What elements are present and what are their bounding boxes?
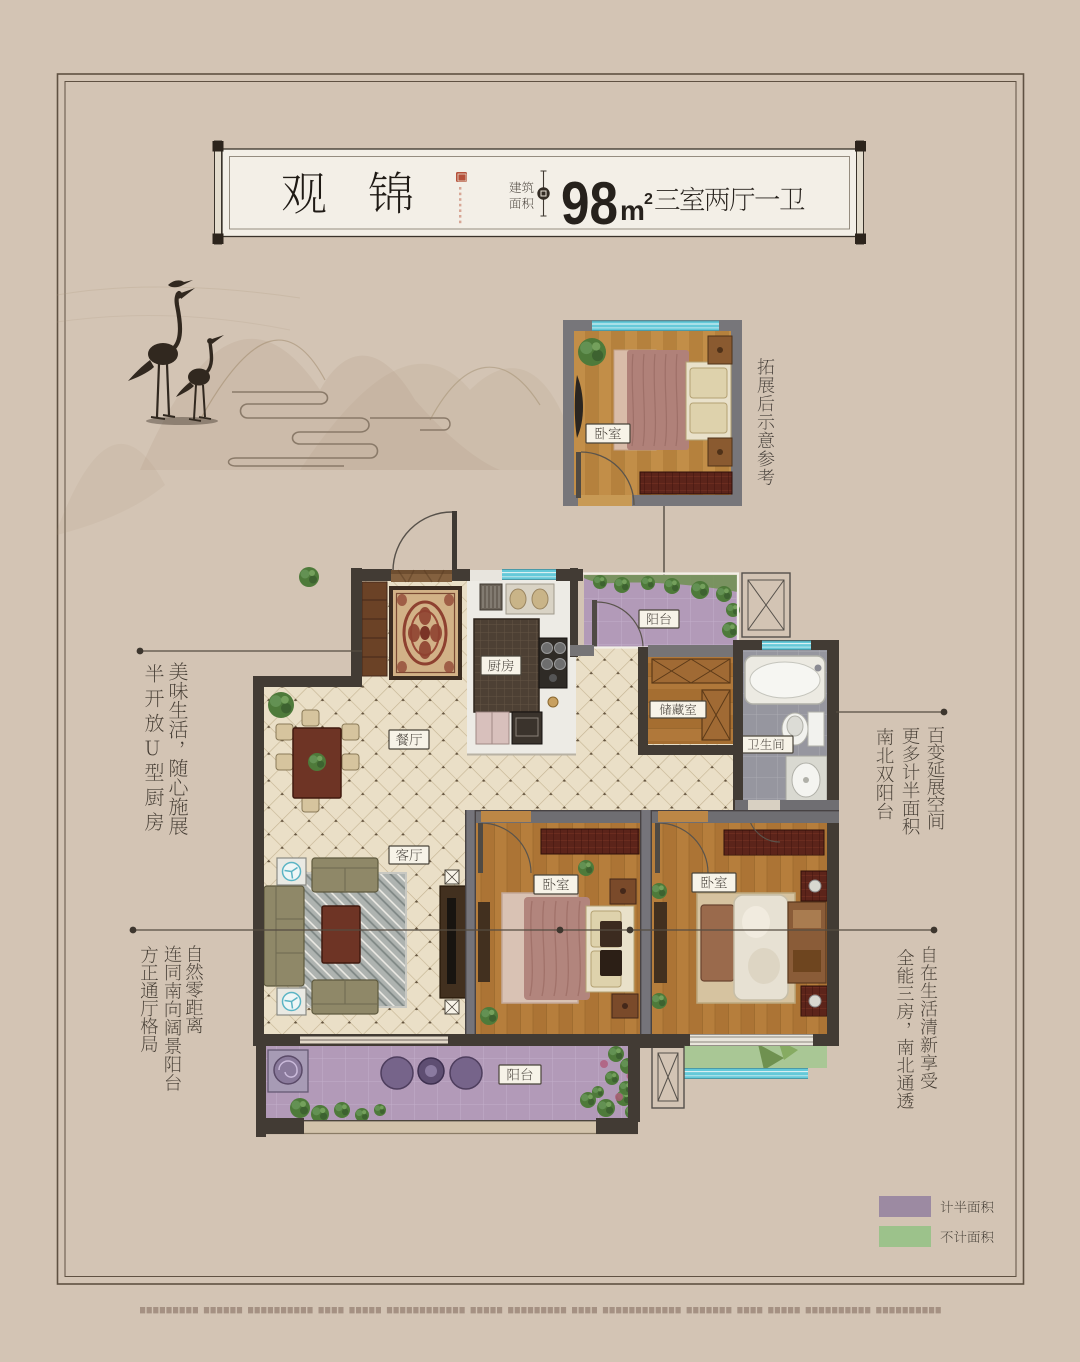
svg-text:98: 98 bbox=[561, 170, 618, 237]
svg-text:m: m bbox=[620, 195, 645, 226]
svg-text:2: 2 bbox=[644, 191, 653, 208]
